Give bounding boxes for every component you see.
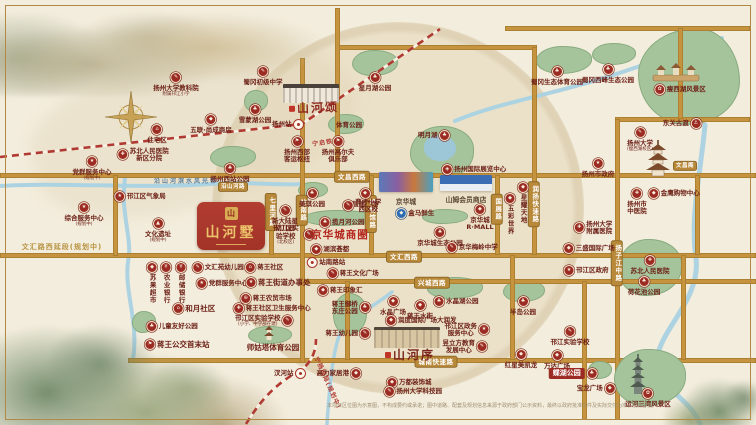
project-building-xu [374,327,440,348]
location-map-poster: 宁启铁路宁扬城际(规划中)文昌西路文汇西路兴城西路城南快速路站南路七里河路博物馆… [0,0,756,425]
poi: ✿瘦西湖风景区 [654,84,706,95]
road [681,255,686,360]
park-icon: ♣ [439,130,450,141]
poi: ✚扬州大学附属医院 [574,220,613,236]
hospital-icon: ✚ [645,255,656,266]
shop-icon: ◆ [604,383,615,394]
poi: 邗江区实验学校(小学、中学部在建)✎ [235,314,293,328]
poi-label: 师姑塔体育公园 [247,343,300,352]
park-icon: ♣ [552,66,563,77]
poi: ✎邗江实验学校 [551,326,590,346]
poi-label: 五联·尚成商房 [190,126,231,134]
gov-icon: ★ [114,191,125,202]
poi-label: 邗江区政府 [576,266,609,274]
poi-label: 体育公园 [336,121,362,129]
poi-text: 京华梅岭中学 [459,243,498,251]
poi-label: 金鹰购物中心 [661,189,700,197]
poi-text: 蒋王幼儿园 [326,329,359,337]
poi-text: 蝶湖公园 [549,368,585,379]
poi-label: 瘦西湖风景区 [667,85,706,93]
poi-label: 三盛国际广场 [576,244,615,252]
poi-text: 五联·尚成商房 [190,126,231,134]
poi-label: 邗江实验学校 [551,338,590,346]
poi-text: 育才小学西区校 [355,198,381,214]
road-label-pill: 沿山河路 [218,182,248,192]
poi-text: 瘦西湖风景区 [667,85,706,93]
poi: ◆蒋王印象汇 [318,285,363,296]
poi-sublabel: 中医院 [627,208,647,216]
poi-label: 文汇苑幼儿园 [205,263,244,271]
shop-icon: ◆ [563,243,574,254]
poi: ♣扬州西站公园 [211,163,250,183]
poi-label: 美琪公园 [299,200,325,208]
poi: ◆三盛国际广场 [563,243,615,254]
road-label-pill: 润扬快速路 [528,181,540,227]
poi: ♣蜀冈西峰生态公园 [582,64,634,84]
poi-label: 荷花池公园 [628,288,661,296]
poi-text: 扬州大学教科院附属邗江小学 [153,84,199,98]
school-icon: ✎ [360,328,371,339]
park-icon: ♣ [586,368,597,379]
poi-label: 站南路站 [319,258,345,266]
poi: ✎扬州大学科技园 [384,386,442,397]
hospital-icon: ✚ [632,188,643,199]
poi-label: 扬州大学教科院 [153,84,199,92]
poi-sublabel: (规划中) [75,222,92,227]
poi-text: 半岛公园 [510,308,536,316]
mall-building-sam [440,175,492,191]
shop-icon: ◆ [386,315,397,326]
home-icon: ⌂ [152,124,163,135]
poi: ✚扬州市中医院 [627,188,647,216]
poi-sublabel: 客运枢纽 [284,156,310,164]
poi-label: 红星美凯龙 [505,361,538,369]
poi-text: 扬州大学附属医院 [586,220,612,236]
park-icon: ♣ [435,227,446,238]
poi-text: 扬州站 [272,120,292,128]
poi-sublabel: 西区校 [359,206,379,214]
project-shanhe-shu: 山山河墅 [197,202,265,250]
railway-station-icon [295,368,306,379]
poi-label: 苏北人民医院 [631,267,670,275]
poi-label: 高力家居港 [317,369,350,377]
poi-sublabel: 东庄公园 [332,308,358,316]
poi-text: 苏北人民医院 [631,267,670,275]
shop-icon: ◆ [388,296,399,307]
shop-icon: ◆ [415,300,426,311]
metro-station-icon [307,257,318,268]
poi-text: 星耀天地 [519,194,527,224]
poi-text: 文化遗址(规划中) [145,230,171,244]
poi-label: 明月湖 [418,131,438,139]
poi-text: 京华城商圈 [311,229,369,242]
park-icon: ♣ [359,302,370,313]
poi-label: 扬州西站公园 [211,175,250,183]
poi-text: 站南路站 [319,258,345,266]
scenic-icon: ✿ [654,84,665,95]
poi: ◆盒马鲜生 [396,208,435,219]
poi-text: 蜀冈初级中学 [244,78,283,86]
poi: 蒋王御桥东庄公园♣ [332,300,371,316]
poi-text: 扬州西站公园 [211,175,250,183]
poi-text: 蒋王御桥东庄公园 [332,300,358,316]
project-name-text: 山河序 [393,346,435,363]
bus-icon: ⚑ [145,339,156,350]
poi-text: 蒋王印象汇 [330,286,363,294]
poi-label: 蝶湖公园 [549,368,585,379]
poi: ♣星月湖公园 [359,72,392,92]
poi: ✚苏北人民医院 [631,255,670,275]
poi: 汊河站 [274,368,306,379]
poi: ★邗江区气象局 [114,191,166,202]
poi-text: 邗江区政务服务中心 [445,322,478,338]
poi: ¥农业银行 [161,262,172,304]
poi: ◆星耀天地 [518,182,529,224]
wuting-bridge-icon [652,60,700,84]
shop-icon: ◆ [205,114,216,125]
school-icon: ✎ [171,72,182,83]
poi: ★党群服务中心(规划中) [73,156,112,182]
poi-label: 星月湖公园 [359,84,392,92]
poi-text: 儿童友好公园 [159,322,198,330]
poi-text: 盒马鲜生 [408,209,434,217]
poi-label: 农业银行 [162,274,170,304]
school-icon: ✎ [192,262,203,273]
road-label-pill: 文昌阁 [673,161,697,171]
park-icon: ♣ [320,217,331,228]
poi-text: 蒋王街道办事处 [258,278,311,287]
poi-label: 扬州市政府 [582,170,615,178]
poi-text: 星月湖公园 [359,84,392,92]
poi-label: 京华梅岭中学 [459,243,498,251]
poi-text: 红星美凯龙 [505,361,538,369]
poi: ♣水晶湖公园 [434,296,479,307]
poi-label: 扬州大学 [627,139,653,147]
poi-text: 党群服务中心 [209,279,248,287]
poi-label: 文化遗址 [145,230,171,238]
poi-sublabel: 附属邗江小学 [163,92,190,97]
poi-text: 揽月河公园 [332,218,365,226]
school-icon: ✎ [634,127,645,138]
school-icon: ✎ [258,66,269,77]
mall-label: 山姆会员商店 [446,194,487,204]
poi-text: 苏果超市 [148,274,156,304]
school-icon: ✎ [565,326,576,337]
shop-icon: ◆ [552,350,563,361]
poi-text: 邮储银行 [177,274,185,304]
hema-icon: ◆ [396,208,407,219]
school-icon: ✎ [282,315,293,326]
poi-label: 京华城商圈 [311,229,369,242]
road [337,45,537,50]
poi-label: 党群服务中心 [73,168,112,176]
gov-icon: ★ [79,202,90,213]
star-icon: ★ [87,156,98,167]
poi-text: 湖滨荟都 [323,245,349,253]
road [582,281,587,420]
road-label-pill: 兴城西路 [414,277,450,289]
poi-text: 扬州西部客运枢纽 [284,148,310,164]
poi-label: 蒋王公交首末站 [157,340,210,349]
poi: 蒋王幼儿园✎ [326,328,371,339]
poi-text: 邗江区实验学校(北校区) [270,224,302,246]
star-icon: ★ [593,158,604,169]
poi-label: 揽月河公园 [332,218,365,226]
mini-seal-icon [385,352,391,358]
poi-sublabel: 新区分院 [136,155,162,163]
school-icon: ✎ [280,205,291,216]
golf-icon: ⚑ [333,136,344,147]
mall-label: 京华城 [396,196,416,206]
poi-text: 邗江区气象局 [127,192,166,200]
shop-icon: ◆ [318,285,329,296]
bus-icon: ⚑ [292,136,303,147]
poi-text: 农业银行 [162,274,170,304]
map-disclaimer: 本项目区位图为示意图，不构成要约或承诺；图中道路、配套及规划信息来源于政府部门公… [327,402,665,410]
poi-text: 和月社区 [185,304,215,313]
hospital-icon: ✚ [117,149,128,160]
poi: ★扬州市政府 [582,158,615,178]
poi-sublabel: R·MALL [466,224,493,232]
project-rule [216,244,246,245]
road [695,175,700,255]
park-icon: ♣ [370,72,381,83]
poi-label: 雪蒙湖公园 [239,116,272,124]
park-icon: ♣ [307,188,318,199]
poi-sublabel: (规划中) [149,238,166,243]
poi-text: 扬州国际展览中心 [454,165,506,173]
poi-text: 汊河站 [274,369,294,377]
poi-text: 文汇苑幼儿园 [205,263,244,271]
poi: ◆红星美凯龙 [505,349,538,369]
poi-text: 体育公园 [336,121,362,129]
poi: ¥邮储银行 [176,262,187,304]
poi: ♣雪蒙湖公园 [239,104,272,124]
poi: 高力家居港◆ [317,368,362,379]
project-name-song: 山河颂 [289,98,340,117]
poi-text: 蜀冈西峰生态公园 [582,76,634,84]
poi-text: 三盛国际广场 [576,244,615,252]
poi: 扬州站 [272,119,304,130]
poi-label: 邗江区实验学校 [270,224,302,240]
poi: ✎京华梅岭中学 [446,242,498,253]
poi-text: 邗江区实验学校(小学、中学部在建) [235,314,281,328]
poi-label: 和月社区 [185,304,215,313]
poi: ⌂住宅区 [147,124,167,144]
poi-label: 扬州大学科技园 [397,387,443,395]
poi: ♣美琪公园 [299,188,325,208]
road [302,279,756,284]
poi-sublabel: (规划中) [83,176,100,181]
poi: 明月湖♣ [418,130,450,141]
poi: ▲文化遗址(规划中) [145,218,171,244]
poi: 昱立方教育发展中心✎ [443,339,488,355]
poi: ♣揽月河公园 [320,217,365,228]
poi: ♣半岛公园 [510,296,536,316]
shop-icon: ◆ [516,349,527,360]
shop-icon: ◆ [505,193,516,204]
poi-text: 邗江实验学校 [551,338,590,346]
poi: ⌂蒋王社区 [245,262,284,273]
poi-text: 扬州大学科技园 [397,387,443,395]
poi: ⚑扬州西部客运枢纽 [284,136,310,164]
poi: ✎蜀冈初级中学 [244,66,283,86]
poi-label: 蒋王社区 [257,263,283,271]
poi: ◆水晶广场 [380,296,406,316]
poi: ⌂和月社区 [173,303,216,314]
poi-text: 综合服务中心(规划中) [65,214,104,228]
park-icon: ♣ [250,104,261,115]
poi-label: 扬州国际展览中心 [454,165,506,173]
poi-text: 蒋王公交首末站 [157,340,210,349]
edu-icon: ✎ [477,341,488,352]
poi: ✚苏北人民医院新区分院 [117,147,169,163]
poi-text: 金鹰购物中心 [661,189,700,197]
poi: ♣荷花池公园 [628,276,661,296]
poi-label: 宝龙广场 [577,384,603,392]
poi-text: 东关古渡 [663,119,689,127]
shop-icon: ◆ [311,244,322,255]
poi-label: 党群服务中心 [209,279,248,287]
poi-text: 蒋王文化广场 [340,269,379,277]
culture-icon: ✎ [327,268,338,279]
hospital-icon: ✚ [574,222,585,233]
poi: ♣蜀冈生态体育公园 [531,66,583,86]
park-icon: ♣ [146,321,157,332]
poi-label: 蒋王文化广场 [340,269,379,277]
poi-sublabel: 发展中心 [446,347,472,355]
poi-text: 扬州大学(瘦西湖校区) [627,139,653,153]
poi-label: 星耀天地 [519,194,527,224]
poi-label: 湖滨荟都 [323,245,349,253]
poi-label: 蜀冈西峰生态公园 [582,76,634,84]
shop-icon: ◆ [648,188,659,199]
poi-label: 东关古渡 [663,119,689,127]
poi-sublabel: (瘦西湖校区) [627,147,653,152]
poi-label: 蜀冈初级中学 [244,78,283,86]
poi-text: 明月湖 [418,131,438,139]
waterfront-label: 沿山河滨水风光带 [154,176,218,185]
poi-text: 师姑塔体育公园 [247,343,300,352]
poi: ⚑扬州高尔夫俱乐部 [322,136,355,164]
poi-label: 住宅区 [147,136,167,144]
poi-text: 美琪公园 [299,200,325,208]
shop-icon: ◆ [518,182,529,193]
poi: 蝶湖公园♣ [549,368,598,379]
project-name-text: 山河颂 [297,98,340,116]
poi-text: 高力家居港 [317,369,350,377]
poi-label: 汊河站 [274,369,294,377]
poi-text: 宝龙广场 [577,384,603,392]
poi: 东关古渡⚓ [663,118,702,129]
park-blob [592,43,636,65]
poi-text: 邗江区政府 [576,266,609,274]
poi-label: 综合服务中心 [65,214,104,222]
poi-label: 邗江区气象局 [127,192,166,200]
poi-text: 雪蒙湖公园 [239,116,272,124]
poi-label: 五彩世界 [506,205,514,235]
poi: ★综合服务中心(规划中) [65,202,104,228]
poi-sublabel: (北校区) [277,240,294,245]
poi-text: 扬州市政府 [582,170,615,178]
poi: ✚蒋王社区卫生服务中心 [233,303,311,314]
poi: ◈扬州国际展览中心 [442,164,507,175]
mall-building-jhc [379,172,433,192]
star-icon: ★ [196,278,207,289]
project-title: 山河墅 [206,222,257,242]
poi-text: 昱立方教育发展中心 [443,339,476,355]
poi: ✎扬州大学教科院附属邗江小学 [153,72,199,98]
shop-icon: ◆ [147,262,158,273]
poi: ✎文汇苑幼儿园 [192,262,244,273]
poi-text: 五彩世界 [506,205,514,235]
poi-label: 半岛公园 [510,308,536,316]
community-icon: ⌂ [173,303,184,314]
project-seal-icon: 山 [225,207,238,220]
park-icon: ♣ [603,64,614,75]
poi-label: 邮储银行 [177,274,185,304]
shop-icon: ◆ [474,204,485,215]
park-icon: ♣ [225,163,236,174]
poi-label: 儿童友好公园 [159,322,198,330]
poi: ★党群服务中心 [196,278,248,289]
park-icon: ♣ [518,296,529,307]
poi-label: 邗江区实验学校 [235,314,281,322]
star-icon: ★ [564,265,575,276]
poi: ✎育才小学西区校 [343,198,382,214]
poi-text: 水晶湖公园 [446,297,479,305]
poi: 站南路站 [307,257,346,268]
bank-icon: ¥ [176,262,187,273]
poi: ★邗江区政府 [564,265,609,276]
poi-sublabel: (小学、中学部在建) [238,322,278,327]
expo-icon: ◈ [442,164,453,175]
gov-icon: ★ [246,277,257,288]
project-name-xu: 山河序 [385,346,435,363]
school-icon: ✎ [343,200,354,211]
hospital-icon: ✚ [233,303,244,314]
community-icon: ⌂ [245,262,256,273]
poi-label: 蒋王印象汇 [330,286,363,294]
gov-icon: ★ [479,324,490,335]
shop-icon: ◆ [351,368,362,379]
poi: ◆金鹰购物中心 [648,188,700,199]
heritage-icon: ▲ [153,218,164,229]
ferry-icon: ⚓ [690,118,701,129]
poi: ⚑蒋王公交首末站 [145,339,210,350]
poi-label: 水晶湖公园 [446,297,479,305]
poi-label: 盒马鲜生 [408,209,434,217]
poi-label: 扬州站 [272,120,292,128]
poi-text: 扬州市中医院 [627,200,647,216]
poi-text: 京华城R·MALL [466,216,493,232]
poi-label: 苏果超市 [148,274,156,304]
poi-text: 扬州高尔夫俱乐部 [322,148,355,164]
poi-text: 蜀冈生态体育公园 [531,78,583,86]
road [113,175,118,256]
bank-icon: ¥ [161,262,172,273]
poi: ◆五彩世界 [505,193,516,235]
poi-text: 蒋王社区卫生服务中心 [246,304,311,312]
park-icon: ♣ [639,276,650,287]
poi-label: 蒋王社区卫生服务中心 [246,304,311,312]
road-label-pill: 文昌西路 [334,171,370,183]
poi-label: 蒋王幼儿园 [326,329,359,337]
poi-text: 住宅区 [147,136,167,144]
poi-label: 蒋王街道办事处 [258,278,311,287]
poi: 邗江区实验学校(北校区)✎ [270,224,315,246]
poi: 邗江区政务服务中心★ [445,322,490,338]
